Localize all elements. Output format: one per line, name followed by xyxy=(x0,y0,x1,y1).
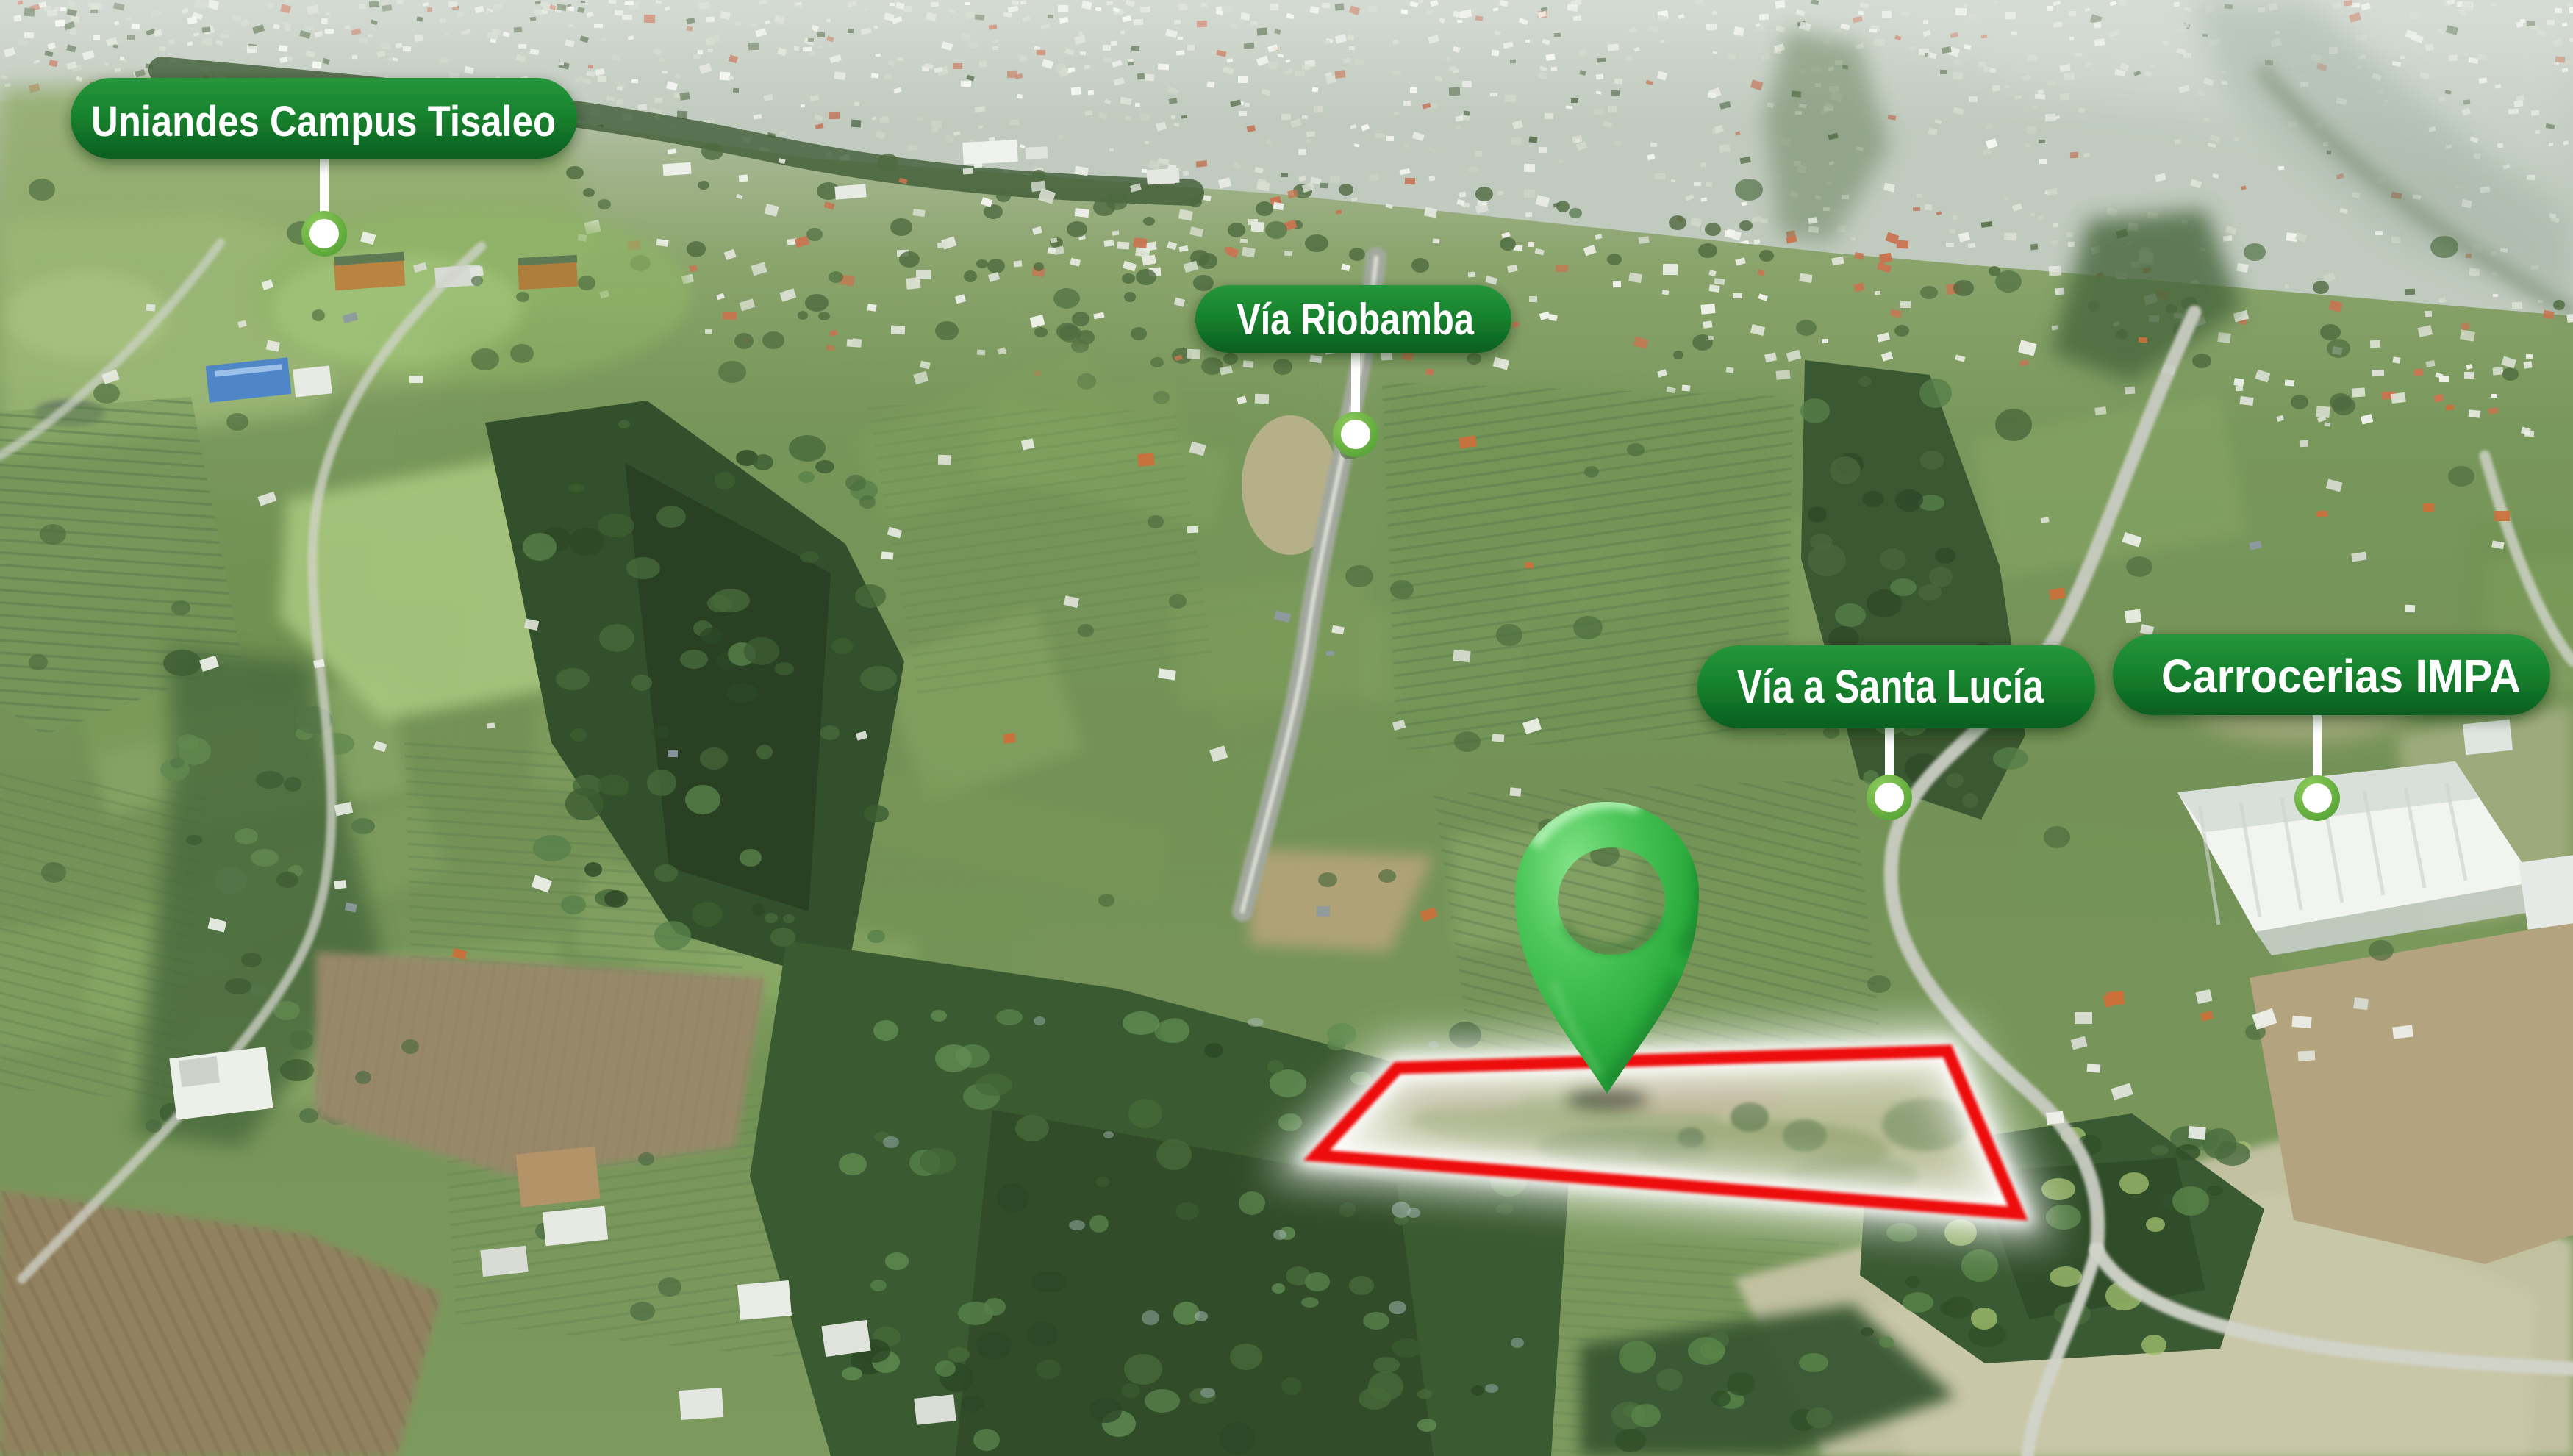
svg-text:Vía a Santa Lucía: Vía a Santa Lucía xyxy=(1737,660,2044,713)
svg-text:Carrocerias IMPA: Carrocerias IMPA xyxy=(2161,650,2521,703)
svg-text:Uniandes Campus Tisaleo: Uniandes Campus Tisaleo xyxy=(91,98,556,146)
svg-text:Vía Riobamba: Vía Riobamba xyxy=(1237,295,1475,344)
